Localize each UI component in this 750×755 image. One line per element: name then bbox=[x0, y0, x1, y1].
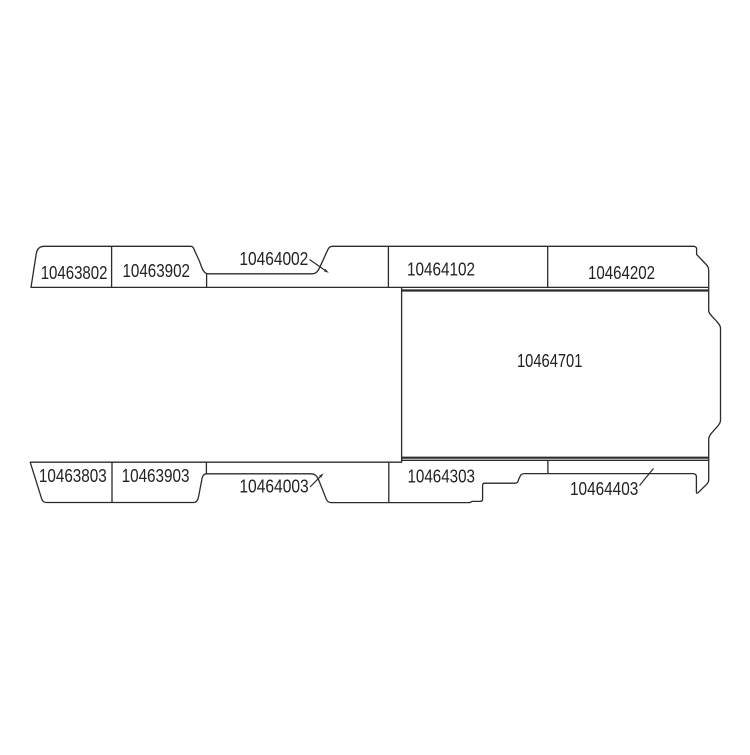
svg-text:10463802: 10463802 bbox=[41, 263, 108, 283]
svg-text:10464701: 10464701 bbox=[517, 351, 582, 371]
svg-text:10464003: 10464003 bbox=[239, 476, 308, 496]
svg-text:10464002: 10464002 bbox=[239, 249, 308, 269]
svg-text:10463803: 10463803 bbox=[39, 466, 107, 486]
svg-text:10464303: 10464303 bbox=[408, 467, 476, 487]
svg-text:10463902: 10463902 bbox=[123, 261, 191, 281]
svg-text:10464403: 10464403 bbox=[570, 479, 638, 499]
svg-text:10464202: 10464202 bbox=[588, 263, 655, 283]
svg-text:10464102: 10464102 bbox=[407, 260, 475, 280]
svg-text:10463903: 10463903 bbox=[122, 466, 190, 486]
